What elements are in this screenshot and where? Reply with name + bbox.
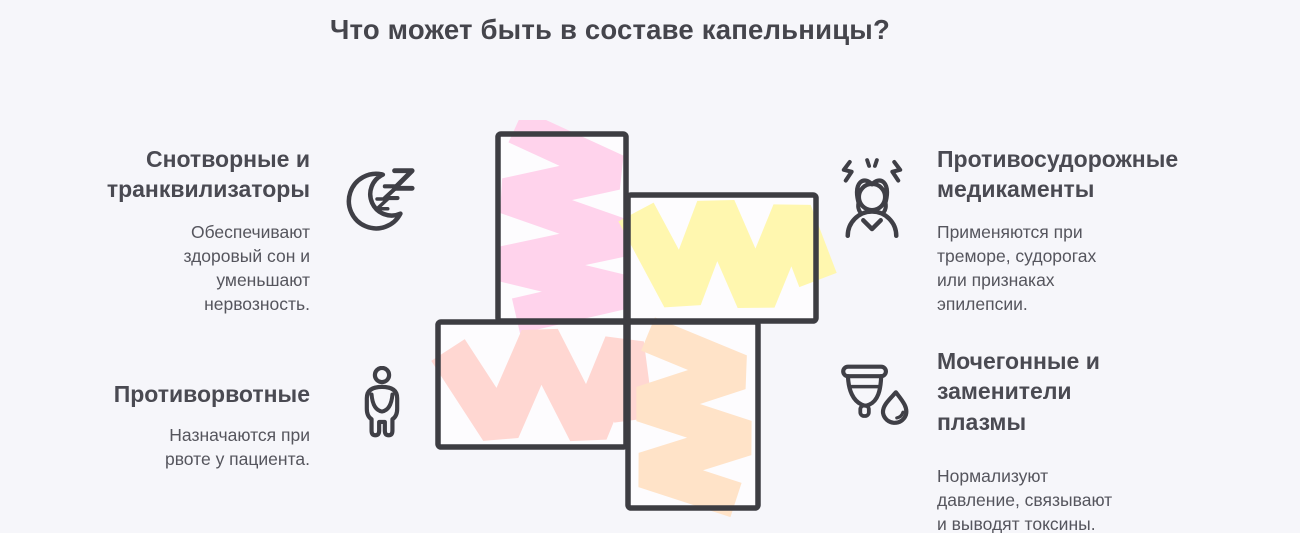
stressed-person-icon (839, 155, 905, 239)
section-diuretics: Мочегонные и заменители плазмы Нормализу… (937, 346, 1222, 537)
pinwheel-figure (420, 120, 840, 540)
sleep-moon-icon (339, 163, 417, 235)
section-heading: Противосудорожные медикаменты (937, 144, 1222, 205)
section-description: Применяются при треморе, судорогах или п… (937, 221, 1222, 317)
section-sedatives: Снотворные и транквилизаторы Обеспечиваю… (60, 144, 310, 317)
infographic-canvas: Что может быть в составе капельницы? Сно… (0, 0, 1300, 546)
nausea-person-icon (357, 366, 407, 440)
bottom-white-strip (0, 533, 1300, 546)
section-antiemetics: Противорвотные Назначаются при рвоте у п… (60, 379, 310, 472)
section-anticonvulsants: Противосудорожные медикаменты Применяютс… (937, 144, 1222, 317)
section-description: Обеспечивают здоровый сон и уменьшают не… (60, 221, 310, 317)
cup-drop-icon (838, 360, 912, 436)
section-heading: Противорвотные (60, 379, 310, 409)
section-heading: Снотворные и транквилизаторы (60, 144, 310, 205)
section-heading: Мочегонные и заменители плазмы (937, 346, 1222, 437)
section-description: Назначаются при рвоте у пациента. (60, 424, 310, 472)
page-title: Что может быть в составе капельницы? (0, 14, 1220, 46)
section-description: Нормализуют давление, связывают и выводя… (937, 465, 1222, 537)
